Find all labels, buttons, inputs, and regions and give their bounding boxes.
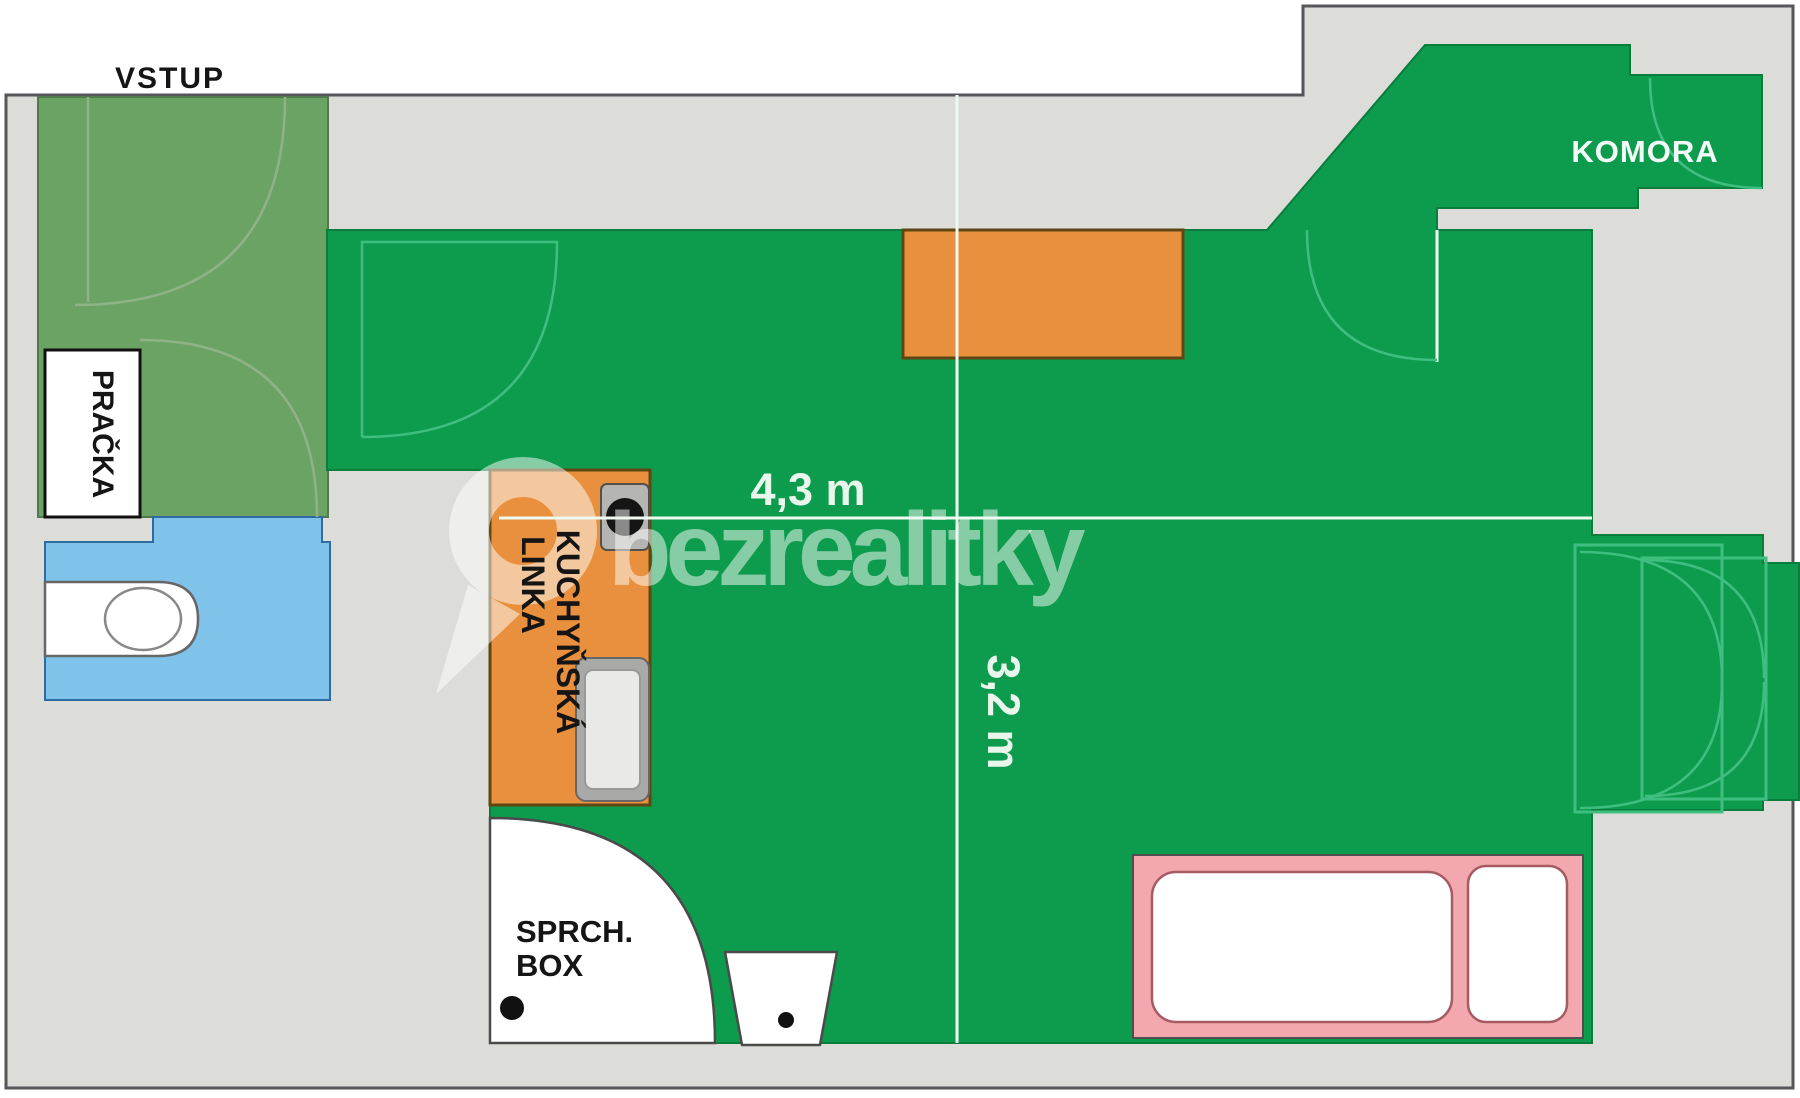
washbasin-drain-icon: [778, 1012, 794, 1028]
toilet-bowl-icon: [105, 588, 181, 650]
stove-inner-icon: [585, 670, 640, 789]
dimension-label-horizontal: 4,3 m: [750, 464, 865, 515]
bed-mattress: [1152, 872, 1452, 1022]
kitchen-label-line1: KUCHYŇSKÁ: [550, 530, 586, 734]
shower-drain-icon: [500, 996, 524, 1020]
bed-pillow: [1468, 866, 1567, 1022]
washbasin-icon: [725, 952, 837, 1045]
floor-plan-page: bezrealitky 4,3 m 3,2 m VSTUP KOMORA PRA…: [0, 0, 1800, 1098]
shower-label-line2: BOX: [516, 948, 584, 983]
washer-label: PRAČKA: [86, 370, 120, 498]
kitchen-label-line2: LINKA: [515, 536, 551, 634]
floor-plan-drawing: bezrealitky 4,3 m 3,2 m VSTUP KOMORA PRA…: [0, 0, 1800, 1098]
dimension-label-vertical: 3,2 m: [978, 654, 1029, 769]
komora-label: KOMORA: [1571, 134, 1718, 169]
entry-label: VSTUP: [115, 62, 225, 95]
shower-label-line1: SPRCH.: [516, 914, 633, 949]
table-furniture: [903, 230, 1183, 358]
